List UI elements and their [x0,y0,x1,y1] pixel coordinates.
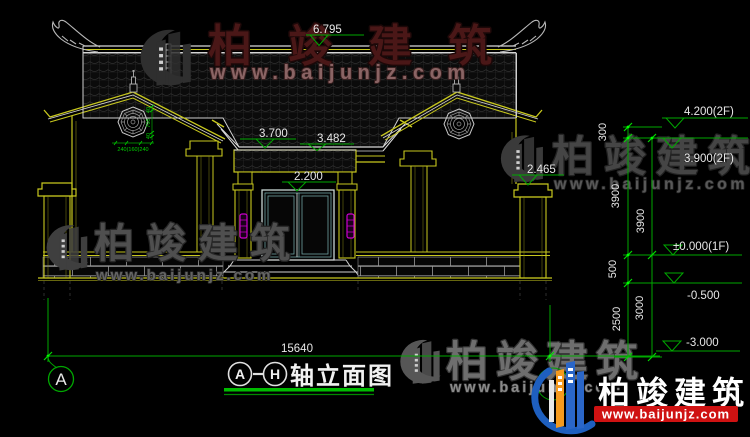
level-value-canopy: 3.482 [317,133,346,145]
watermark-bottom-logo-icon [400,340,440,384]
overall-width-value: 15640 [281,343,313,355]
watermark-top-url: www.baijunjz.com [209,62,471,84]
brick-plinth-right [358,257,520,278]
level-marker-floor-1f: ±0.000(1F) [664,241,729,255]
vdim-parapet: 300 [597,123,609,141]
level-value-door: 2.200 [294,171,323,183]
level-value-ridge: 6.795 [313,24,342,36]
title-text: 轴立面图 [290,362,394,390]
wall-lamp-right [347,214,354,238]
vdim-basement-b: 3000 [634,296,646,320]
title-axis-start: A [235,366,245,382]
logo-bar-blue-right [577,371,584,429]
level-value-floor-2f: 3.900(2F) [684,153,734,165]
bagua-dim-v-top: 40 [146,107,152,113]
watermark-left-url: www.baijunjz.com [95,267,273,284]
axis-bubble-a-label: A [55,370,67,389]
logo-bar-white [549,380,554,422]
level-value-floor-1f: ±0.000(1F) [673,241,729,253]
level-value-below-grade: -0.500 [687,290,720,302]
gate-pillar-right [514,184,552,278]
level-marker-roof-2f: 4.200(2F) [662,106,748,128]
vdim-plinth: 500 [607,260,619,278]
title-underline-thick [224,388,374,392]
watermark-left-brand: 柏竣建筑 [94,222,302,266]
logo-bar-blue-mid [566,361,575,430]
level-value-center-eave: 3.700 [259,128,288,140]
level-value-foundation: -3.000 [686,337,719,349]
level-marker-foundation: -3.000 [656,337,740,351]
level-value-roof-2f: 4.200(2F) [684,106,734,118]
bagua-window-left [118,107,148,137]
bagua-dim-v-bot: 40 [146,133,152,139]
vdim-basement-a: 2500 [611,307,623,331]
vdim-floor2-b: 3900 [635,209,647,233]
level-marker-door: 2.200 [282,171,336,191]
bagua-dim-horizontal: 240(160)240 [117,147,148,153]
watermark-right-url: www.baijunjz.com [553,176,748,193]
elevation-drawing-canvas: 40 705 40 240(160)240 [0,0,750,437]
right-corner-column [400,151,436,252]
axis-bubble-a: A [48,356,74,392]
logo-url-text: www.baijunjz.com [601,407,730,422]
level-marker-below-grade: -0.500 [665,273,720,302]
level-value-side-eave: 2.465 [527,164,556,176]
drawing-title-block: A H 轴立面图 [224,362,394,395]
swallowtail-ornament-left [52,20,100,52]
vdim-floor2-a: 3900 [610,184,622,208]
bagua-window-right [444,109,474,139]
bagua-dim-v-mid: 705 [146,118,152,127]
title-axis-end: H [270,366,280,382]
cad-elevation-screenshot: 40 705 40 240(160)240 [0,0,750,437]
